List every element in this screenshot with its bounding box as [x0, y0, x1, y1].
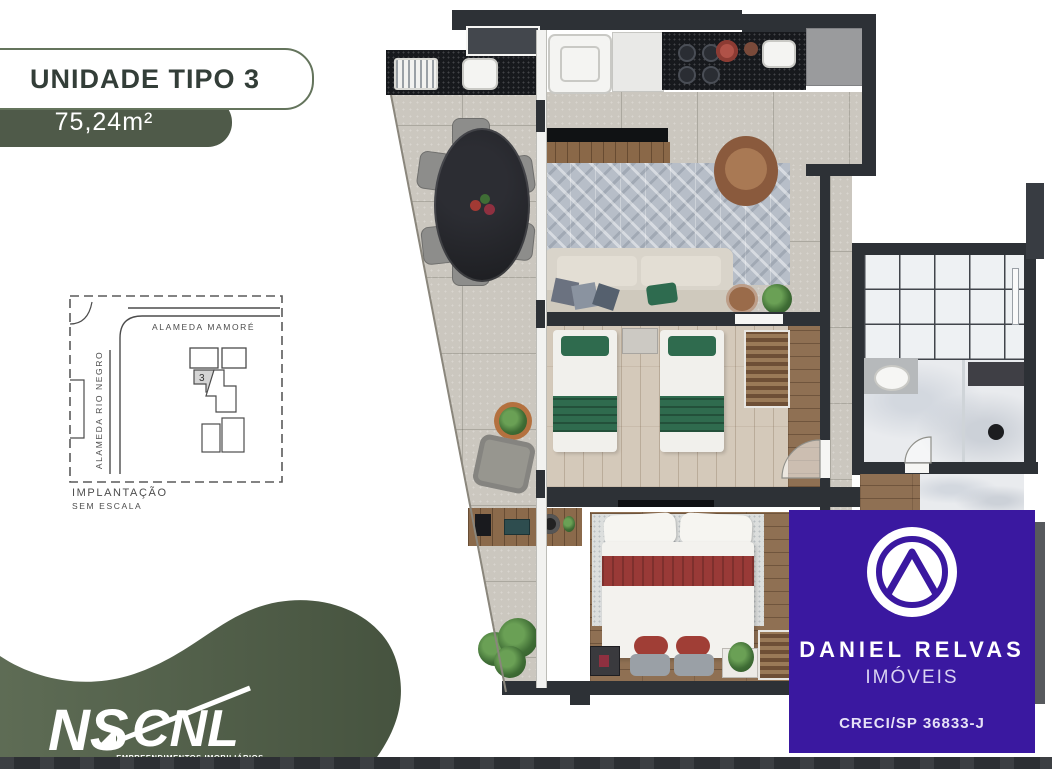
unit-type-title: UNIDADE TIPO 3 [30, 64, 260, 95]
bowl-icon [744, 42, 758, 56]
burner-icon [678, 44, 696, 62]
window-mullion [536, 470, 545, 498]
broker-license: CRECI/SP 36833-J [789, 715, 1035, 732]
wall-wing-top [852, 243, 1038, 255]
shower-niche [968, 362, 1024, 386]
unit-type-badge: UNIDADE TIPO 3 [0, 48, 314, 110]
kitchen-corner-counter [806, 28, 866, 86]
master-tv-panel [618, 500, 714, 507]
cushion-gray [674, 654, 714, 676]
window-mullion [536, 300, 545, 328]
developer-wave: NS CNL EMPREENDIMENTOS IMOBILIÁRIOS [0, 568, 448, 769]
tv-console [543, 142, 670, 165]
wall-nook-right [862, 22, 876, 172]
grill-icon [394, 58, 438, 90]
street-top-label: ALAMEDA MAMORÉ [152, 322, 255, 332]
kitchen-cabinet [612, 32, 664, 92]
hallway-floor [830, 176, 852, 520]
towel-rail-icon [1012, 268, 1019, 325]
lounge-chair [471, 433, 537, 496]
balcony-plant-pot [494, 402, 532, 440]
single-bed [660, 330, 724, 452]
laundry-floor [864, 255, 1024, 360]
corridor-floor [788, 326, 820, 487]
broker-card: DANIEL RELVAS IMÓVEIS CRECI/SP 36833-J [789, 510, 1035, 753]
kitchen-sink-icon [548, 34, 612, 94]
living-plant [762, 284, 792, 314]
window-mullion [536, 100, 545, 132]
wall-living-bed2 [540, 312, 830, 326]
burner-icon [702, 66, 720, 84]
tv-panel [538, 128, 668, 142]
bedroom-plant [728, 642, 754, 672]
cushion-gray [630, 654, 670, 676]
door-gap [735, 314, 783, 324]
balcony-sink-icon [462, 58, 498, 90]
sofa [545, 248, 733, 312]
siteplan-caption-1: IMPLANTAÇÃO [72, 486, 168, 499]
bottom-band [0, 757, 1052, 769]
wall-bottom-stub [570, 681, 590, 705]
table-flowers [468, 192, 498, 220]
wing-lower-marble [920, 474, 1024, 512]
siteplan-caption-2: SEM ESCALA [72, 501, 142, 511]
door-gap [820, 440, 830, 478]
vanity-counter [864, 358, 918, 394]
deck-plant [563, 516, 575, 532]
wall-nook-bottom [806, 164, 876, 176]
pouf-red [634, 636, 668, 656]
wall-wing-right [1024, 255, 1036, 465]
street-left-label: ALAMEDA RIO NEGRO [94, 351, 104, 469]
wall-wing-stub [1026, 183, 1044, 259]
bathroom-sink-icon [874, 365, 910, 391]
wardrobe-rack [744, 330, 790, 408]
site-plan: 3 ALAMEDA MAMORÉ ALAMEDA RIO NEGRO IMPLA… [62, 288, 292, 518]
prep-sink-icon [762, 40, 796, 68]
nightstand [622, 328, 658, 354]
unit-area-text: 75,24m² [55, 108, 154, 137]
wall-wing-bottom [852, 462, 1038, 474]
unit-number: 3 [199, 373, 205, 384]
coffee-machine-icon [475, 514, 491, 536]
door-gap [905, 463, 929, 473]
shower-head-icon [988, 424, 1004, 440]
armchair [714, 136, 778, 206]
pouf-red [676, 636, 710, 656]
nightstand [590, 646, 620, 676]
wall-wing-left [852, 243, 864, 475]
flyer: 75,24m² UNIDADE TIPO 3 3 ALAMEDA MAMORÉ … [0, 0, 1052, 769]
balcony-panel [466, 26, 540, 56]
burner-icon [678, 66, 696, 84]
tray-icon [504, 519, 530, 535]
single-bed [553, 330, 617, 452]
shower-glass [962, 360, 965, 462]
broker-name: DANIEL RELVAS [789, 637, 1035, 663]
wing-lower-wood [860, 474, 920, 512]
side-table [726, 284, 758, 314]
broker-card-shadow [1035, 522, 1045, 704]
pillow-green [646, 282, 678, 306]
red-pan-icon [716, 40, 738, 62]
broker-subtitle: IMÓVEIS [789, 667, 1035, 689]
broker-logo-icon [864, 524, 960, 620]
balcony-large-plant [478, 618, 540, 680]
